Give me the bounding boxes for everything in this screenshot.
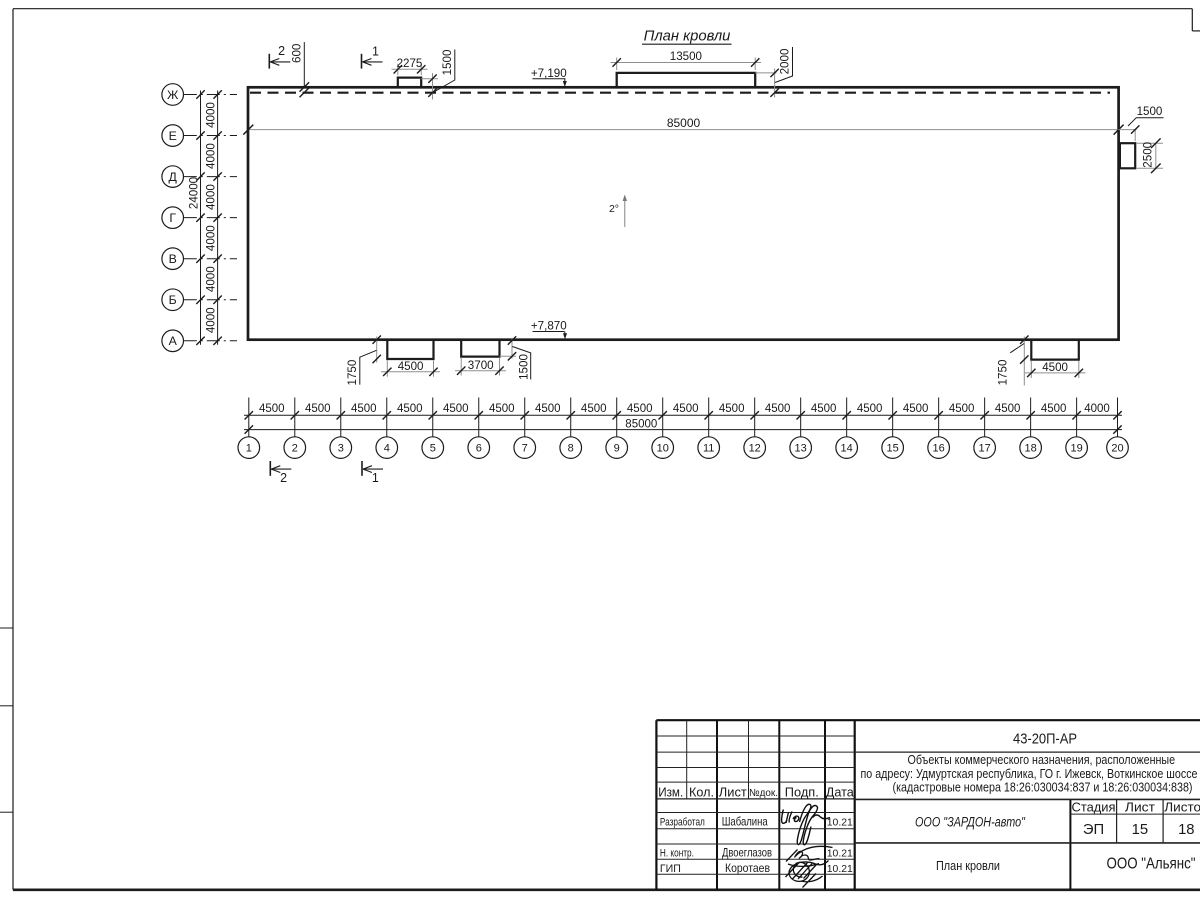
svg-text:19: 19 <box>1070 443 1082 455</box>
svg-text:13500: 13500 <box>670 50 702 63</box>
svg-text:1: 1 <box>372 45 379 59</box>
svg-text:4500: 4500 <box>489 403 515 415</box>
svg-text:2: 2 <box>278 44 285 58</box>
svg-text:10: 10 <box>657 443 669 455</box>
svg-text:ООО "ЗАРДОН-авто": ООО "ЗАРДОН-авто" <box>915 815 1026 830</box>
svg-text:7: 7 <box>522 443 528 455</box>
svg-text:4500: 4500 <box>259 403 285 415</box>
svg-text:24000: 24000 <box>187 177 200 209</box>
svg-text:1500: 1500 <box>1137 105 1163 118</box>
svg-text:12: 12 <box>749 443 761 455</box>
svg-text:4500: 4500 <box>765 403 791 415</box>
svg-text:43-20П-АР: 43-20П-АР <box>1013 731 1077 748</box>
svg-text:Д: Д <box>169 170 178 184</box>
svg-text:№док.: №док. <box>749 788 778 799</box>
svg-text:1: 1 <box>372 471 379 485</box>
svg-text:2: 2 <box>292 443 298 455</box>
svg-text:4500: 4500 <box>443 403 469 415</box>
svg-text:План кровли: План кровли <box>936 858 1000 873</box>
svg-text:1750: 1750 <box>997 360 1010 386</box>
svg-text:Объекты коммерческого назначен: Объекты коммерческого назначения, распол… <box>908 753 1176 767</box>
svg-text:Подп.: Подп. <box>785 785 819 800</box>
svg-text:600: 600 <box>290 44 303 63</box>
svg-text:Лист: Лист <box>1125 800 1155 815</box>
svg-text:+7,870: +7,870 <box>531 320 567 333</box>
svg-text:Ж: Ж <box>167 88 179 102</box>
svg-text:В: В <box>169 252 177 266</box>
svg-text:4500: 4500 <box>903 403 929 415</box>
svg-text:13: 13 <box>795 443 807 455</box>
svg-text:85000: 85000 <box>667 116 701 130</box>
svg-text:4500: 4500 <box>857 403 883 415</box>
svg-text:4500: 4500 <box>535 403 561 415</box>
svg-text:Кол.: Кол. <box>689 785 714 800</box>
svg-text:4500: 4500 <box>949 403 975 415</box>
svg-text:1500: 1500 <box>518 354 531 380</box>
svg-text:ООО "Альянс": ООО "Альянс" <box>1107 855 1196 872</box>
svg-text:ЭП: ЭП <box>1083 822 1104 838</box>
svg-text:4500: 4500 <box>398 360 424 373</box>
svg-text:ГИП: ГИП <box>660 863 681 875</box>
svg-text:6: 6 <box>476 443 482 455</box>
svg-text:Е: Е <box>169 129 177 143</box>
svg-text:2000: 2000 <box>779 49 792 75</box>
svg-text:1750: 1750 <box>346 360 359 386</box>
svg-text:Коротаев: Коротаев <box>725 861 770 875</box>
svg-text:4500: 4500 <box>1042 361 1068 374</box>
svg-text:Разработал: Разработал <box>660 817 705 829</box>
svg-text:План кровли: План кровли <box>644 29 731 45</box>
svg-text:11: 11 <box>703 443 714 455</box>
svg-text:4500: 4500 <box>627 403 653 415</box>
svg-text:9: 9 <box>614 443 620 455</box>
svg-text:4000: 4000 <box>1084 403 1110 415</box>
svg-text:10.21: 10.21 <box>827 818 853 829</box>
svg-text:2°: 2° <box>609 203 619 215</box>
svg-text:4500: 4500 <box>305 403 331 415</box>
svg-text:4000: 4000 <box>205 102 218 128</box>
svg-text:85000: 85000 <box>625 419 657 431</box>
svg-text:4000: 4000 <box>205 307 218 333</box>
svg-text:Н. контр.: Н. контр. <box>660 847 694 859</box>
svg-text:2: 2 <box>280 471 287 485</box>
svg-text:15: 15 <box>887 443 899 455</box>
svg-text:4500: 4500 <box>581 403 607 415</box>
svg-text:20: 20 <box>1111 443 1123 455</box>
svg-text:Изм.: Изм. <box>658 785 683 800</box>
svg-text:Дата: Дата <box>826 785 855 800</box>
svg-text:3700: 3700 <box>468 359 494 372</box>
svg-text:4500: 4500 <box>995 403 1021 415</box>
svg-text:4500: 4500 <box>673 403 699 415</box>
svg-text:14: 14 <box>841 443 853 455</box>
svg-text:(кадастровые номера 18:26:0300: (кадастровые номера 18:26:030034:837 и 1… <box>893 781 1193 795</box>
svg-text:17: 17 <box>979 443 991 455</box>
svg-text:5: 5 <box>430 443 436 455</box>
svg-text:10.21: 10.21 <box>827 848 853 859</box>
svg-text:1: 1 <box>246 443 252 455</box>
svg-text:4500: 4500 <box>351 403 377 415</box>
svg-text:Б: Б <box>169 293 177 307</box>
svg-text:18: 18 <box>1025 443 1037 455</box>
svg-text:4000: 4000 <box>205 143 218 169</box>
svg-text:Листов: Листов <box>1164 800 1200 815</box>
svg-text:Двоеглазов: Двоеглазов <box>722 845 772 859</box>
svg-text:Г: Г <box>169 211 176 225</box>
svg-text:4500: 4500 <box>1041 403 1067 415</box>
svg-text:4500: 4500 <box>397 403 423 415</box>
svg-text:4000: 4000 <box>205 225 218 251</box>
svg-text:16: 16 <box>933 443 945 455</box>
svg-text:18: 18 <box>1178 822 1194 838</box>
svg-text:Шабалина: Шабалина <box>722 815 768 829</box>
svg-text:2275: 2275 <box>397 57 423 70</box>
svg-text:А: А <box>169 334 178 348</box>
svg-text:Стадия: Стадия <box>1072 800 1116 815</box>
svg-text:Лист: Лист <box>719 785 747 800</box>
svg-text:2500: 2500 <box>1141 142 1154 168</box>
svg-text:4500: 4500 <box>719 403 745 415</box>
svg-text:4500: 4500 <box>811 403 837 415</box>
svg-text:4: 4 <box>384 443 390 455</box>
svg-text:3: 3 <box>338 443 344 455</box>
svg-text:+7,190: +7,190 <box>531 67 567 80</box>
svg-text:по адресу: Удмуртская республи: по адресу: Удмуртская республика, ГО г. … <box>861 767 1198 781</box>
svg-text:10.21: 10.21 <box>827 864 853 875</box>
svg-text:8: 8 <box>568 443 574 455</box>
svg-text:4000: 4000 <box>205 266 218 292</box>
svg-text:15: 15 <box>1132 822 1148 838</box>
svg-text:1500: 1500 <box>441 50 454 76</box>
svg-text:4000: 4000 <box>205 184 218 210</box>
